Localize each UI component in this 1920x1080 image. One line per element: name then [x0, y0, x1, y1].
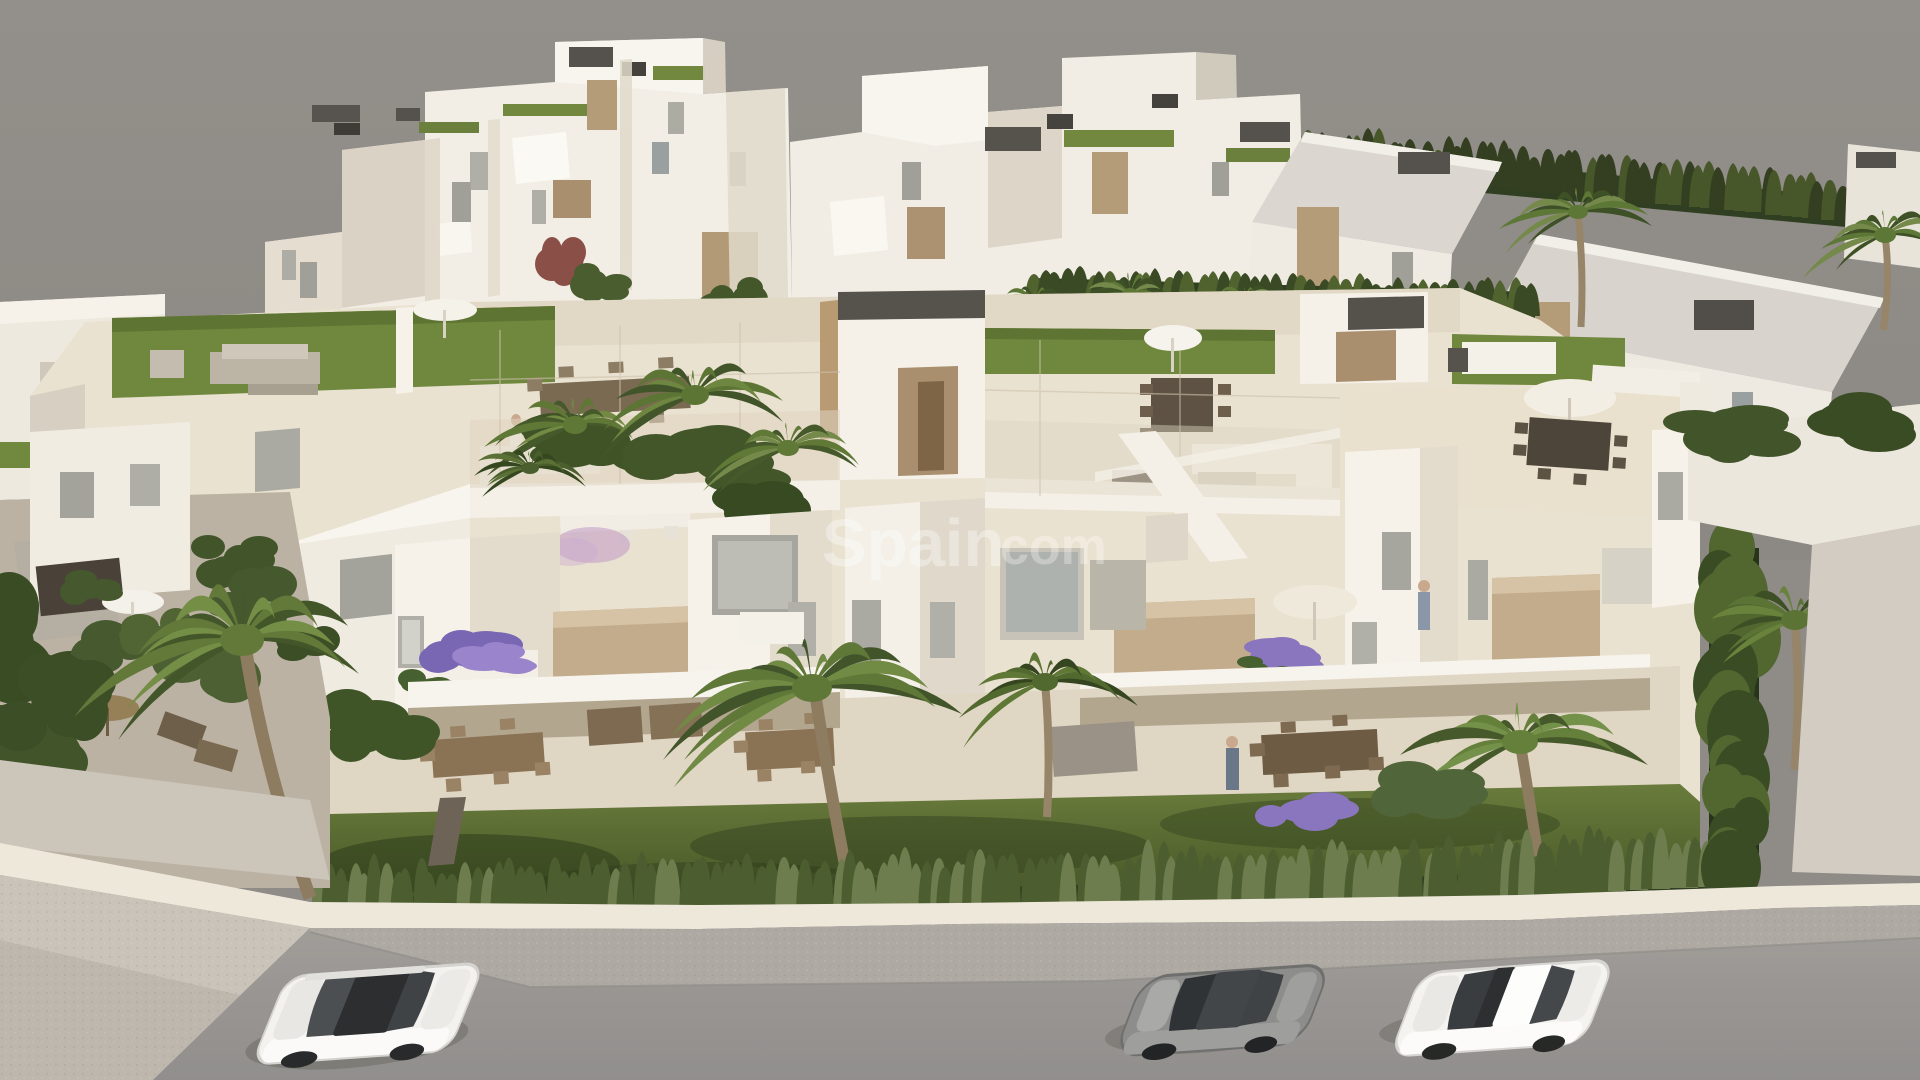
- svg-text:com: com: [1000, 518, 1107, 576]
- svg-text:Spain: Spain: [822, 506, 1004, 581]
